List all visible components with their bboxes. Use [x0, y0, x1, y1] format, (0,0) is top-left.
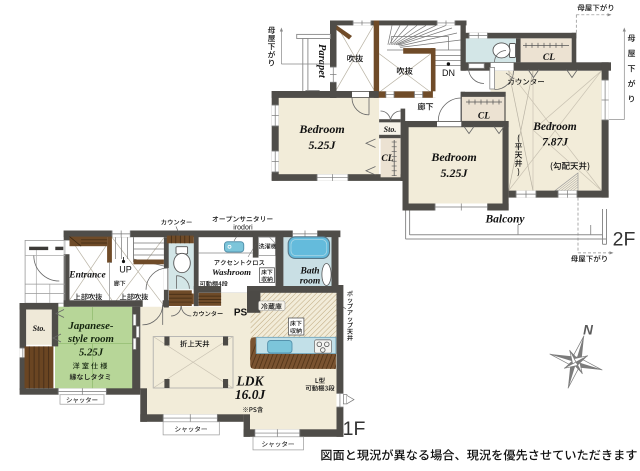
svg-text:N: N [583, 323, 593, 338]
svg-text:style room: style room [67, 333, 114, 345]
svg-text:Sto.: Sto. [384, 125, 397, 134]
svg-text:Entrance: Entrance [68, 271, 106, 281]
svg-text:Bedroom: Bedroom [430, 150, 476, 164]
svg-text:Bedroom: Bedroom [298, 122, 344, 136]
svg-text:5.25J: 5.25J [79, 347, 104, 359]
svg-text:CL: CL [381, 154, 393, 164]
svg-text:DN: DN [442, 68, 455, 78]
svg-text:1F: 1F [343, 418, 366, 440]
svg-text:PS: PS [234, 308, 248, 319]
svg-text:5.25J: 5.25J [309, 138, 337, 152]
svg-text:7.87J: 7.87J [542, 137, 569, 149]
svg-text:2F: 2F [613, 229, 636, 251]
svg-text:CL: CL [543, 53, 555, 63]
svg-text:room: room [300, 277, 321, 287]
svg-text:irodori: irodori [233, 225, 253, 232]
svg-text:CL: CL [478, 112, 490, 122]
svg-text:Washroom: Washroom [212, 267, 251, 277]
svg-text:Parapet: Parapet [316, 44, 327, 79]
svg-text:Sto.: Sto. [33, 324, 46, 333]
svg-text:Balcony: Balcony [485, 214, 526, 226]
svg-text:Japanese-: Japanese- [68, 320, 114, 332]
svg-text:5.25J: 5.25J [441, 166, 469, 180]
svg-text:Bedroom: Bedroom [532, 121, 577, 133]
svg-text:16.0J: 16.0J [235, 387, 267, 402]
svg-text:Bath: Bath [299, 267, 319, 277]
svg-text:UP: UP [119, 265, 132, 275]
